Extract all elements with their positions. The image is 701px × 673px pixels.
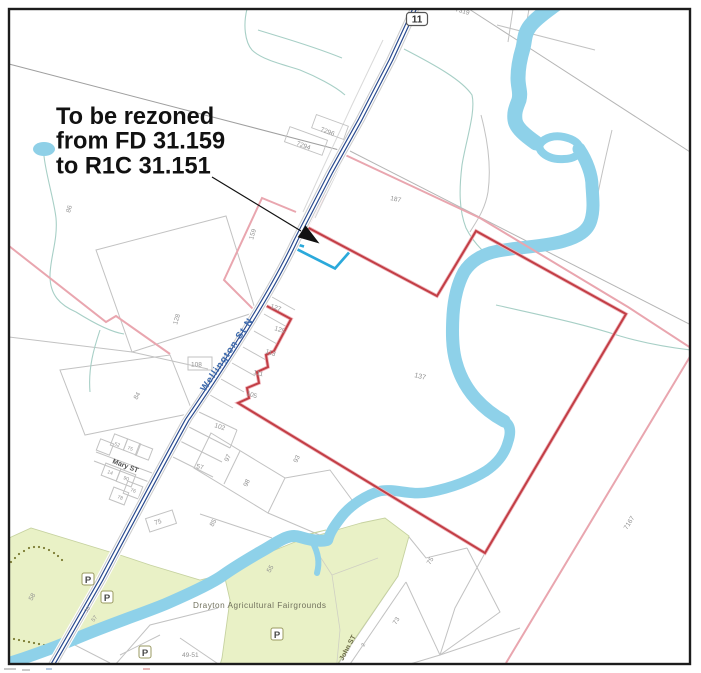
svg-text:P: P [104,593,111,604]
svg-text:Drayton Agricultural Fairgroun: Drayton Agricultural Fairgrounds [193,601,326,610]
svg-text:108: 108 [191,362,202,369]
svg-text:P: P [142,648,149,659]
svg-text:11: 11 [412,15,423,26]
svg-text:49-51: 49-51 [182,652,199,659]
svg-text:from FD 31.159: from FD 31.159 [56,129,225,155]
svg-text:P: P [85,575,92,586]
svg-text:To be rezoned: To be rezoned [56,104,214,130]
svg-text:to R1C 31.151: to R1C 31.151 [56,154,211,180]
svg-text:P: P [274,630,281,641]
